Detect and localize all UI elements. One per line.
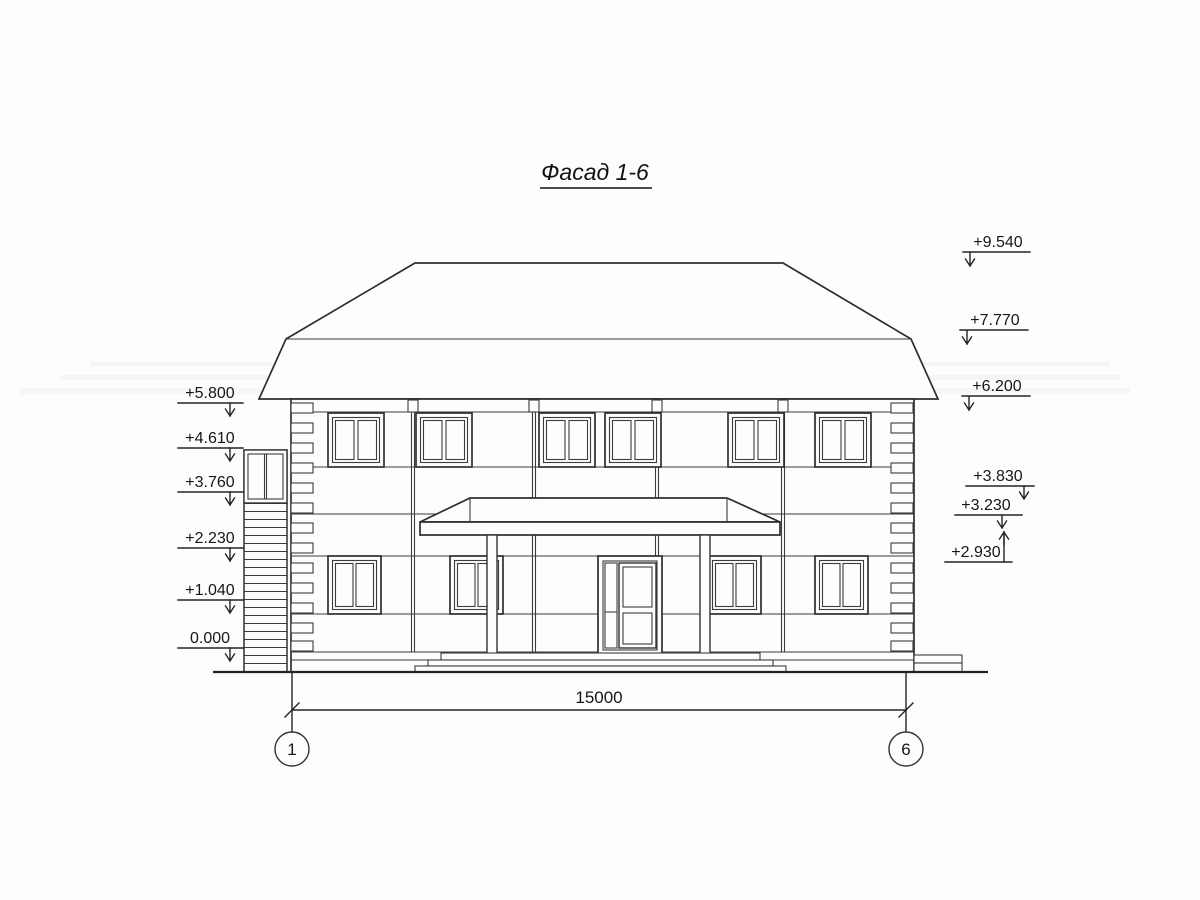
axis-label: 1 [287,740,296,759]
elevation-mark: +3.760 [178,474,243,505]
elevation-mark: +5.800 [178,385,243,416]
dimension-value: 15000 [575,688,622,707]
elevation-marks-right-upper: +9.540 +7.770 +6.200 [960,234,1030,410]
elevation-value: +3.760 [185,474,234,491]
elevation-mark: +1.040 [178,582,243,613]
entrance-door [598,556,662,655]
elevation-value: +5.800 [185,385,234,402]
elevation-mark: +9.540 [963,234,1030,266]
elevation-mark: +2.930 [945,532,1012,562]
window [328,413,384,467]
facade-elevation-drawing: +5.800 +4.610 +3.760 +2.230 +1.040 0.000… [0,0,1200,900]
elevation-mark: +3.830 [966,468,1034,499]
elevation-marks-right-lower: +3.830 +3.230 +2.930 [945,468,1034,562]
elevation-value: +4.610 [185,430,234,447]
elevation-value: +1.040 [185,582,234,599]
elevation-value: +2.230 [185,530,234,547]
title-text: Фасад 1-6 [541,159,649,185]
window [328,556,381,614]
window [728,413,784,467]
window [708,556,761,614]
elevation-mark: 0.000 [178,630,243,661]
elevation-mark: +4.610 [178,430,243,461]
entrance-canopy [420,498,780,535]
elevation-value: +3.230 [961,497,1010,514]
annex-window [244,450,287,503]
elevation-value: +9.540 [973,234,1022,251]
elevation-mark: +7.770 [960,312,1028,344]
elevation-mark: +6.200 [962,378,1030,410]
axis-label: 6 [901,740,910,759]
elevation-value: +7.770 [970,312,1019,329]
elevation-value: 0.000 [190,630,230,647]
entrance-steps [415,653,786,672]
window [815,556,868,614]
dimension: 15000 [285,672,913,731]
elevation-value: +3.830 [973,468,1022,485]
elevation-mark: +3.230 [955,497,1022,528]
elevation-marks-left: +5.800 +4.610 +3.760 +2.230 +1.040 0.000 [178,385,243,661]
window [416,413,472,467]
drawing-title: Фасад 1-6 [540,159,652,188]
side-annex [244,450,287,672]
elevation-mark: +2.230 [178,530,243,561]
drawing-sheet: +5.800 +4.610 +3.760 +2.230 +1.040 0.000… [0,0,1200,900]
window [605,413,661,467]
side-stoop [914,655,962,672]
axis-bubble-6: 6 [889,732,923,766]
window [815,413,871,467]
elevation-value: +6.200 [972,378,1021,395]
axis-bubble-1: 1 [275,732,309,766]
elevation-value: +2.930 [951,544,1000,561]
axis-bubbles: 1 6 [275,732,923,766]
window [539,413,595,467]
roof [259,263,938,399]
